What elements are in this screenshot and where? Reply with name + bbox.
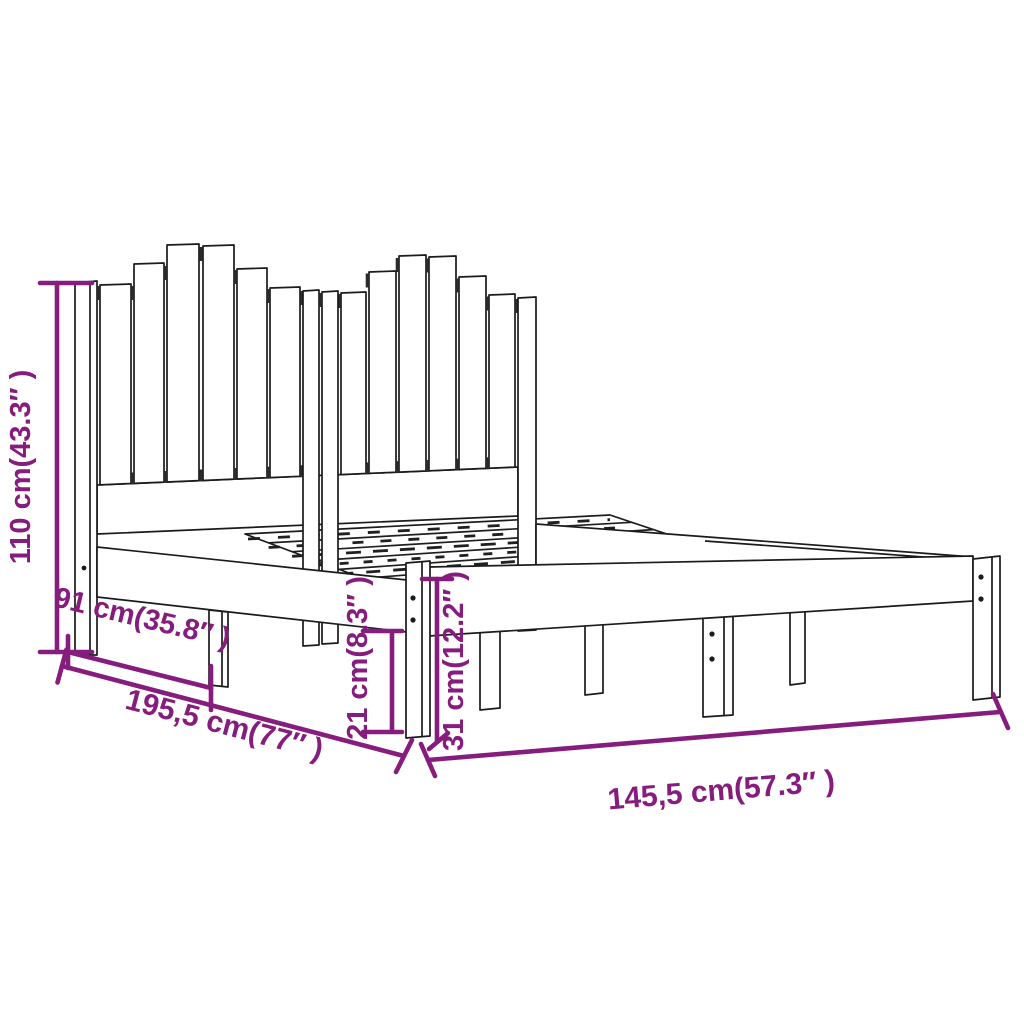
headboard-slat — [459, 276, 486, 470]
diagram-canvas: 110 cm(43.3″ ) 91 cm(35.8″ ) 195,5 cm(77… — [0, 0, 1024, 1024]
front-left-leg — [406, 561, 430, 738]
front-right-leg — [973, 556, 1000, 700]
bed-frame-dimension-diagram: 110 cm(43.3″ ) 91 cm(35.8″ ) 195,5 cm(77… — [0, 0, 1024, 1024]
support-leg — [790, 610, 805, 685]
dim-headboard-height-label: 110 cm(43.3″ ) — [5, 370, 37, 564]
screw-hole — [410, 595, 415, 600]
headboard-slat — [429, 256, 456, 471]
headboard-slat — [203, 245, 234, 481]
headboard-slat — [167, 244, 199, 482]
dim-clearance-label: 21 cm(8.3″ ) — [342, 576, 374, 740]
bed-frame-drawing — [75, 244, 1000, 738]
headboard-slat — [270, 287, 300, 478]
support-leg — [703, 612, 733, 717]
headboard-slat — [100, 284, 131, 485]
dim-frame-height-label: 31 cm(12.2″ ) — [438, 571, 470, 751]
dim-frame-length-label: 195,5 cm(77″ ) — [122, 683, 327, 766]
screw-hole — [410, 617, 415, 622]
headboard-slat — [341, 292, 366, 475]
screw-hole — [709, 631, 714, 636]
headboard-slat — [399, 255, 426, 472]
support-leg — [585, 623, 603, 695]
dim-frame-width-label: 145,5 cm(57.3″ ) — [606, 765, 836, 817]
front-rail — [429, 556, 973, 636]
headboard-slat — [237, 268, 267, 479]
screw-hole — [978, 596, 983, 601]
headboard-slat — [369, 271, 396, 473]
headboard-slat — [134, 263, 164, 483]
screw-hole — [82, 566, 87, 571]
headboard-slat — [489, 294, 515, 468]
screw-hole — [978, 574, 983, 579]
screw-hole — [709, 656, 714, 661]
